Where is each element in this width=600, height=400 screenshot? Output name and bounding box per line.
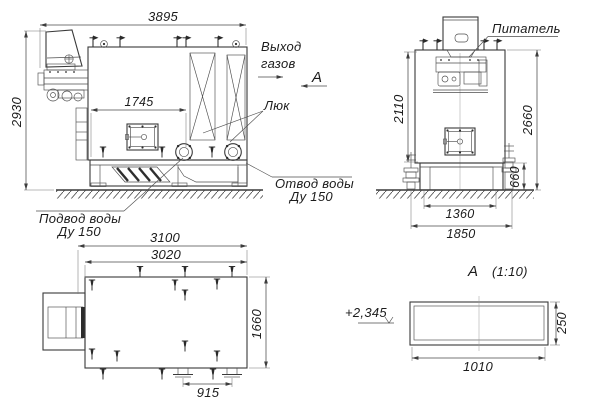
water-supply-line2: Ду 150 (56, 224, 101, 239)
mount-flag-icon (494, 39, 503, 50)
dimension-1745: 1745 (91, 95, 186, 157)
mount-flag-icons-top (90, 36, 224, 47)
dimension-1660: 1660 (249, 277, 270, 368)
water-outlet-line2: Ду 150 (288, 189, 333, 204)
dim-label-1745: 1745 (124, 95, 153, 109)
support-foot (222, 368, 242, 377)
gas-outlet-line2: газов (261, 56, 296, 71)
label-gas-outlet: Выход газов (258, 39, 302, 77)
detail-title-letter: А (467, 263, 478, 280)
boiler-body-side (88, 47, 247, 160)
boiler-body-plan (85, 277, 247, 368)
mount-flag-icon (183, 36, 192, 47)
dim-label-3895: 3895 (148, 9, 179, 24)
anchor-pin-icon (210, 369, 216, 380)
elevation-mark: +2,345 (345, 305, 394, 323)
dim-label-250: 250 (555, 312, 569, 335)
dimension-660: 660 (505, 163, 527, 190)
dimension-250: 250 (550, 302, 569, 345)
gas-duct-hatches (190, 53, 245, 140)
lifting-eye-icons (101, 41, 240, 48)
anchor-pin-icon (172, 280, 178, 291)
fuel-hopper-front (443, 17, 478, 50)
detail-view-a: А (1:10) +2,345 250 1010 (345, 263, 569, 374)
elevation-label: +2,345 (345, 305, 387, 320)
dim-label-1850: 1850 (446, 227, 475, 241)
duct-section (410, 296, 548, 351)
hatch-cover-front (444, 128, 476, 155)
view-letter-a: А (311, 69, 322, 86)
dim-label-2110: 2110 (391, 94, 406, 125)
anchor-pin-icon (182, 290, 188, 301)
water-flange (176, 144, 193, 161)
mount-flag-icon (434, 39, 443, 50)
label-feeder: Питатель (469, 21, 561, 57)
side-view: 3895 2930 1745 Выход газов А (9, 9, 354, 239)
dim-label-3020: 3020 (151, 247, 182, 262)
detail-title: А (1:10) (467, 263, 528, 280)
dim-label-660: 660 (508, 166, 522, 188)
hatch-cover-side (126, 124, 159, 150)
mount-flag-icon (117, 36, 126, 47)
anchor-pin-icon (89, 280, 95, 291)
water-flange (225, 144, 242, 161)
mount-flag-icon (174, 36, 183, 47)
mount-flag-icon (90, 36, 99, 47)
valve-left (403, 152, 419, 189)
dim-label-1010: 1010 (463, 359, 494, 374)
fuel-hopper-side (46, 30, 82, 67)
ground-side (56, 190, 263, 199)
stoker-feeder-side (38, 64, 88, 101)
technical-drawing: 3895 2930 1745 Выход газов А (0, 0, 600, 400)
feeder-label: Питатель (492, 21, 561, 36)
dim-label-1360: 1360 (445, 207, 474, 221)
base-frame-front (420, 163, 503, 190)
front-view: 2110 2660 660 1360 1850 Пита (376, 17, 561, 241)
anchor-pin-icon (89, 349, 95, 360)
dim-label-2930: 2930 (9, 96, 24, 128)
mount-flag-icon (215, 36, 224, 47)
base-frame-side (90, 160, 247, 187)
dimension-2110: 2110 (391, 52, 418, 162)
anchor-pin-icon (214, 351, 220, 362)
anchor-pin-icon (182, 341, 188, 352)
anchor-pin-icon (100, 369, 106, 380)
front-plate (76, 108, 87, 160)
dimension-3020: 3020 (85, 247, 247, 278)
anchor-pin-icon (159, 369, 165, 380)
anchor-pin-icon (137, 267, 143, 278)
anchor-pin-icon (214, 279, 220, 290)
anchor-pin-icon (182, 267, 188, 278)
gas-outlet-line1: Выход (261, 39, 302, 54)
dimension-915: 915 (183, 378, 232, 400)
anchor-pin-icon (229, 267, 235, 278)
drawing-canvas: 3895 2930 1745 Выход газов А (0, 0, 600, 400)
view-direction-a: А (301, 69, 327, 86)
support-foot (173, 368, 193, 377)
stoker-feeder-front (433, 50, 488, 93)
dim-label-915: 915 (197, 385, 220, 400)
detail-title-scale: (1:10) (492, 264, 528, 279)
ground-front (376, 190, 534, 199)
anchor-pin-icon (114, 351, 120, 362)
feeder-attachment-plan (43, 293, 85, 350)
dimension-2930: 2930 (9, 31, 54, 190)
mount-flag-icon (420, 39, 429, 50)
anchor-pin-icon (159, 147, 165, 158)
dim-label-3100: 3100 (150, 230, 181, 245)
anchor-pin-icon (100, 147, 106, 158)
dim-label-2660: 2660 (520, 104, 535, 136)
dimension-1010: 1010 (412, 347, 545, 374)
anchor-pin-icon (209, 147, 215, 158)
dim-label-1660: 1660 (249, 308, 264, 339)
plan-view: 3100 3020 1660 915 (43, 230, 270, 400)
hatch-label: Люк (263, 98, 290, 113)
